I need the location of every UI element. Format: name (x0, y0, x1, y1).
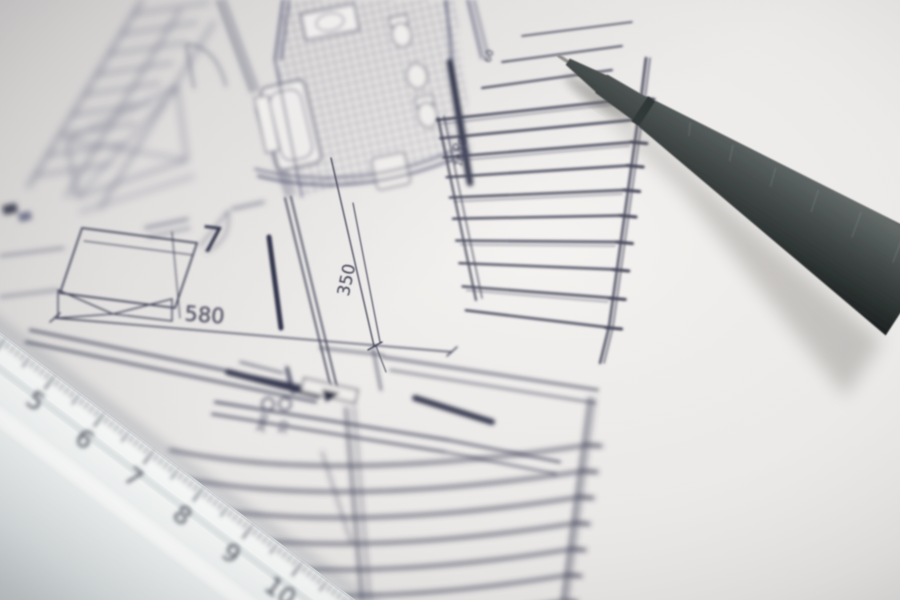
vignette-overlay (0, 0, 900, 600)
photo-of-floor-plan: 7 580 (0, 0, 900, 600)
photo-canvas: 7 580 (0, 0, 900, 600)
